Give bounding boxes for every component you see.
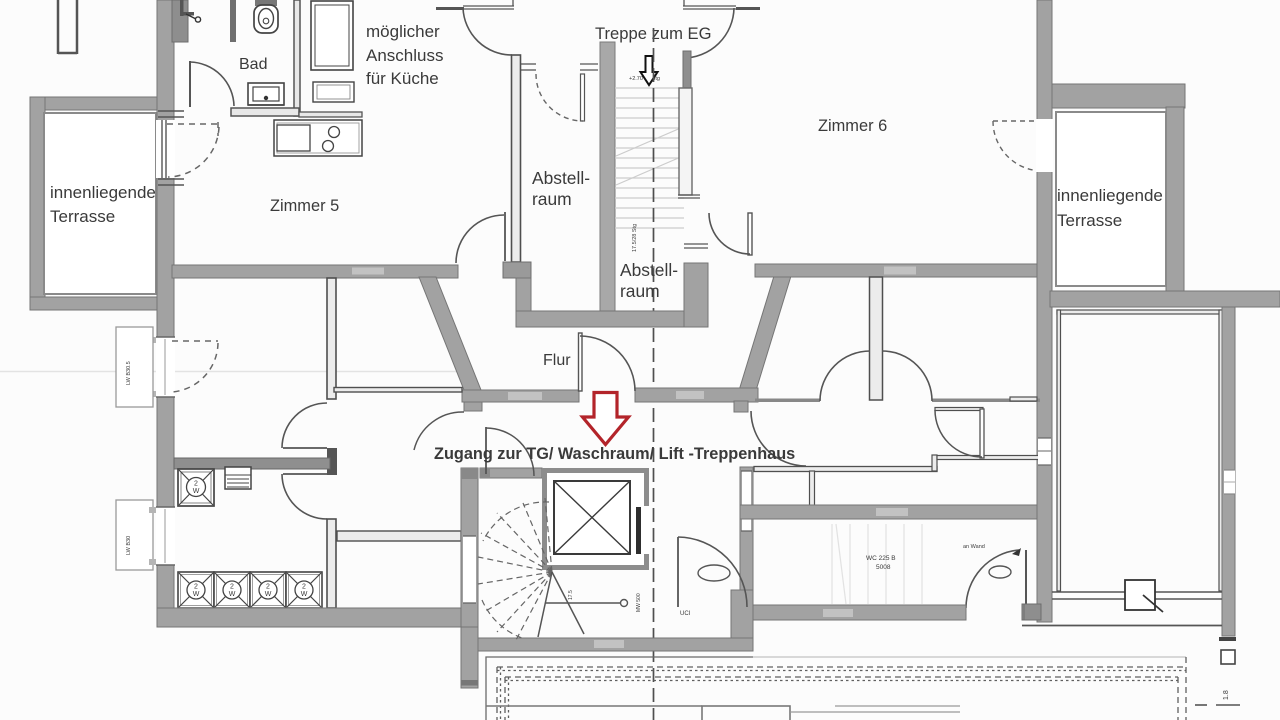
svg-text:Zimmer 5: Zimmer 5 [270, 197, 339, 215]
svg-text:Flur: Flur [543, 352, 571, 369]
svg-text:Terrasse: Terrasse [50, 207, 115, 226]
svg-text:Bad: Bad [239, 56, 267, 73]
svg-text:für Küche: für Küche [366, 69, 439, 88]
svg-text:WC 225 B: WC 225 B [866, 555, 896, 562]
svg-text:2: 2 [194, 481, 198, 488]
svg-text:W: W [193, 488, 200, 495]
svg-text:Zimmer 6: Zimmer 6 [818, 117, 887, 135]
svg-text:1.8: 1.8 [1223, 690, 1230, 700]
svg-text:innenliegende: innenliegende [50, 183, 156, 202]
svg-text:Anschluss: Anschluss [366, 46, 443, 65]
svg-text:5008: 5008 [876, 564, 891, 571]
svg-text:LW B30: LW B30 [126, 536, 132, 555]
svg-text:UCI: UCI [680, 611, 691, 617]
svg-text:Terrasse: Terrasse [1057, 211, 1122, 230]
svg-text:innenliegende: innenliegende [1057, 186, 1163, 205]
svg-text:17.5/28 Stg: 17.5/28 Stg [632, 224, 638, 252]
svg-text:möglicher: möglicher [366, 22, 440, 41]
svg-text:LW B30.5: LW B30.5 [126, 361, 132, 385]
svg-text:17.5: 17.5 [568, 590, 574, 600]
svg-text:an Wand: an Wand [963, 544, 985, 550]
svg-text:raum: raum [532, 189, 572, 209]
svg-text:MW 500: MW 500 [636, 593, 642, 612]
svg-text:raum: raum [620, 281, 660, 301]
svg-text:Abstell-: Abstell- [532, 168, 590, 188]
svg-text:Abstell-: Abstell- [620, 260, 678, 280]
svg-text:Zugang zur TG/ Waschraum/ Lift: Zugang zur TG/ Waschraum/ Lift -Treppenh… [434, 445, 795, 463]
